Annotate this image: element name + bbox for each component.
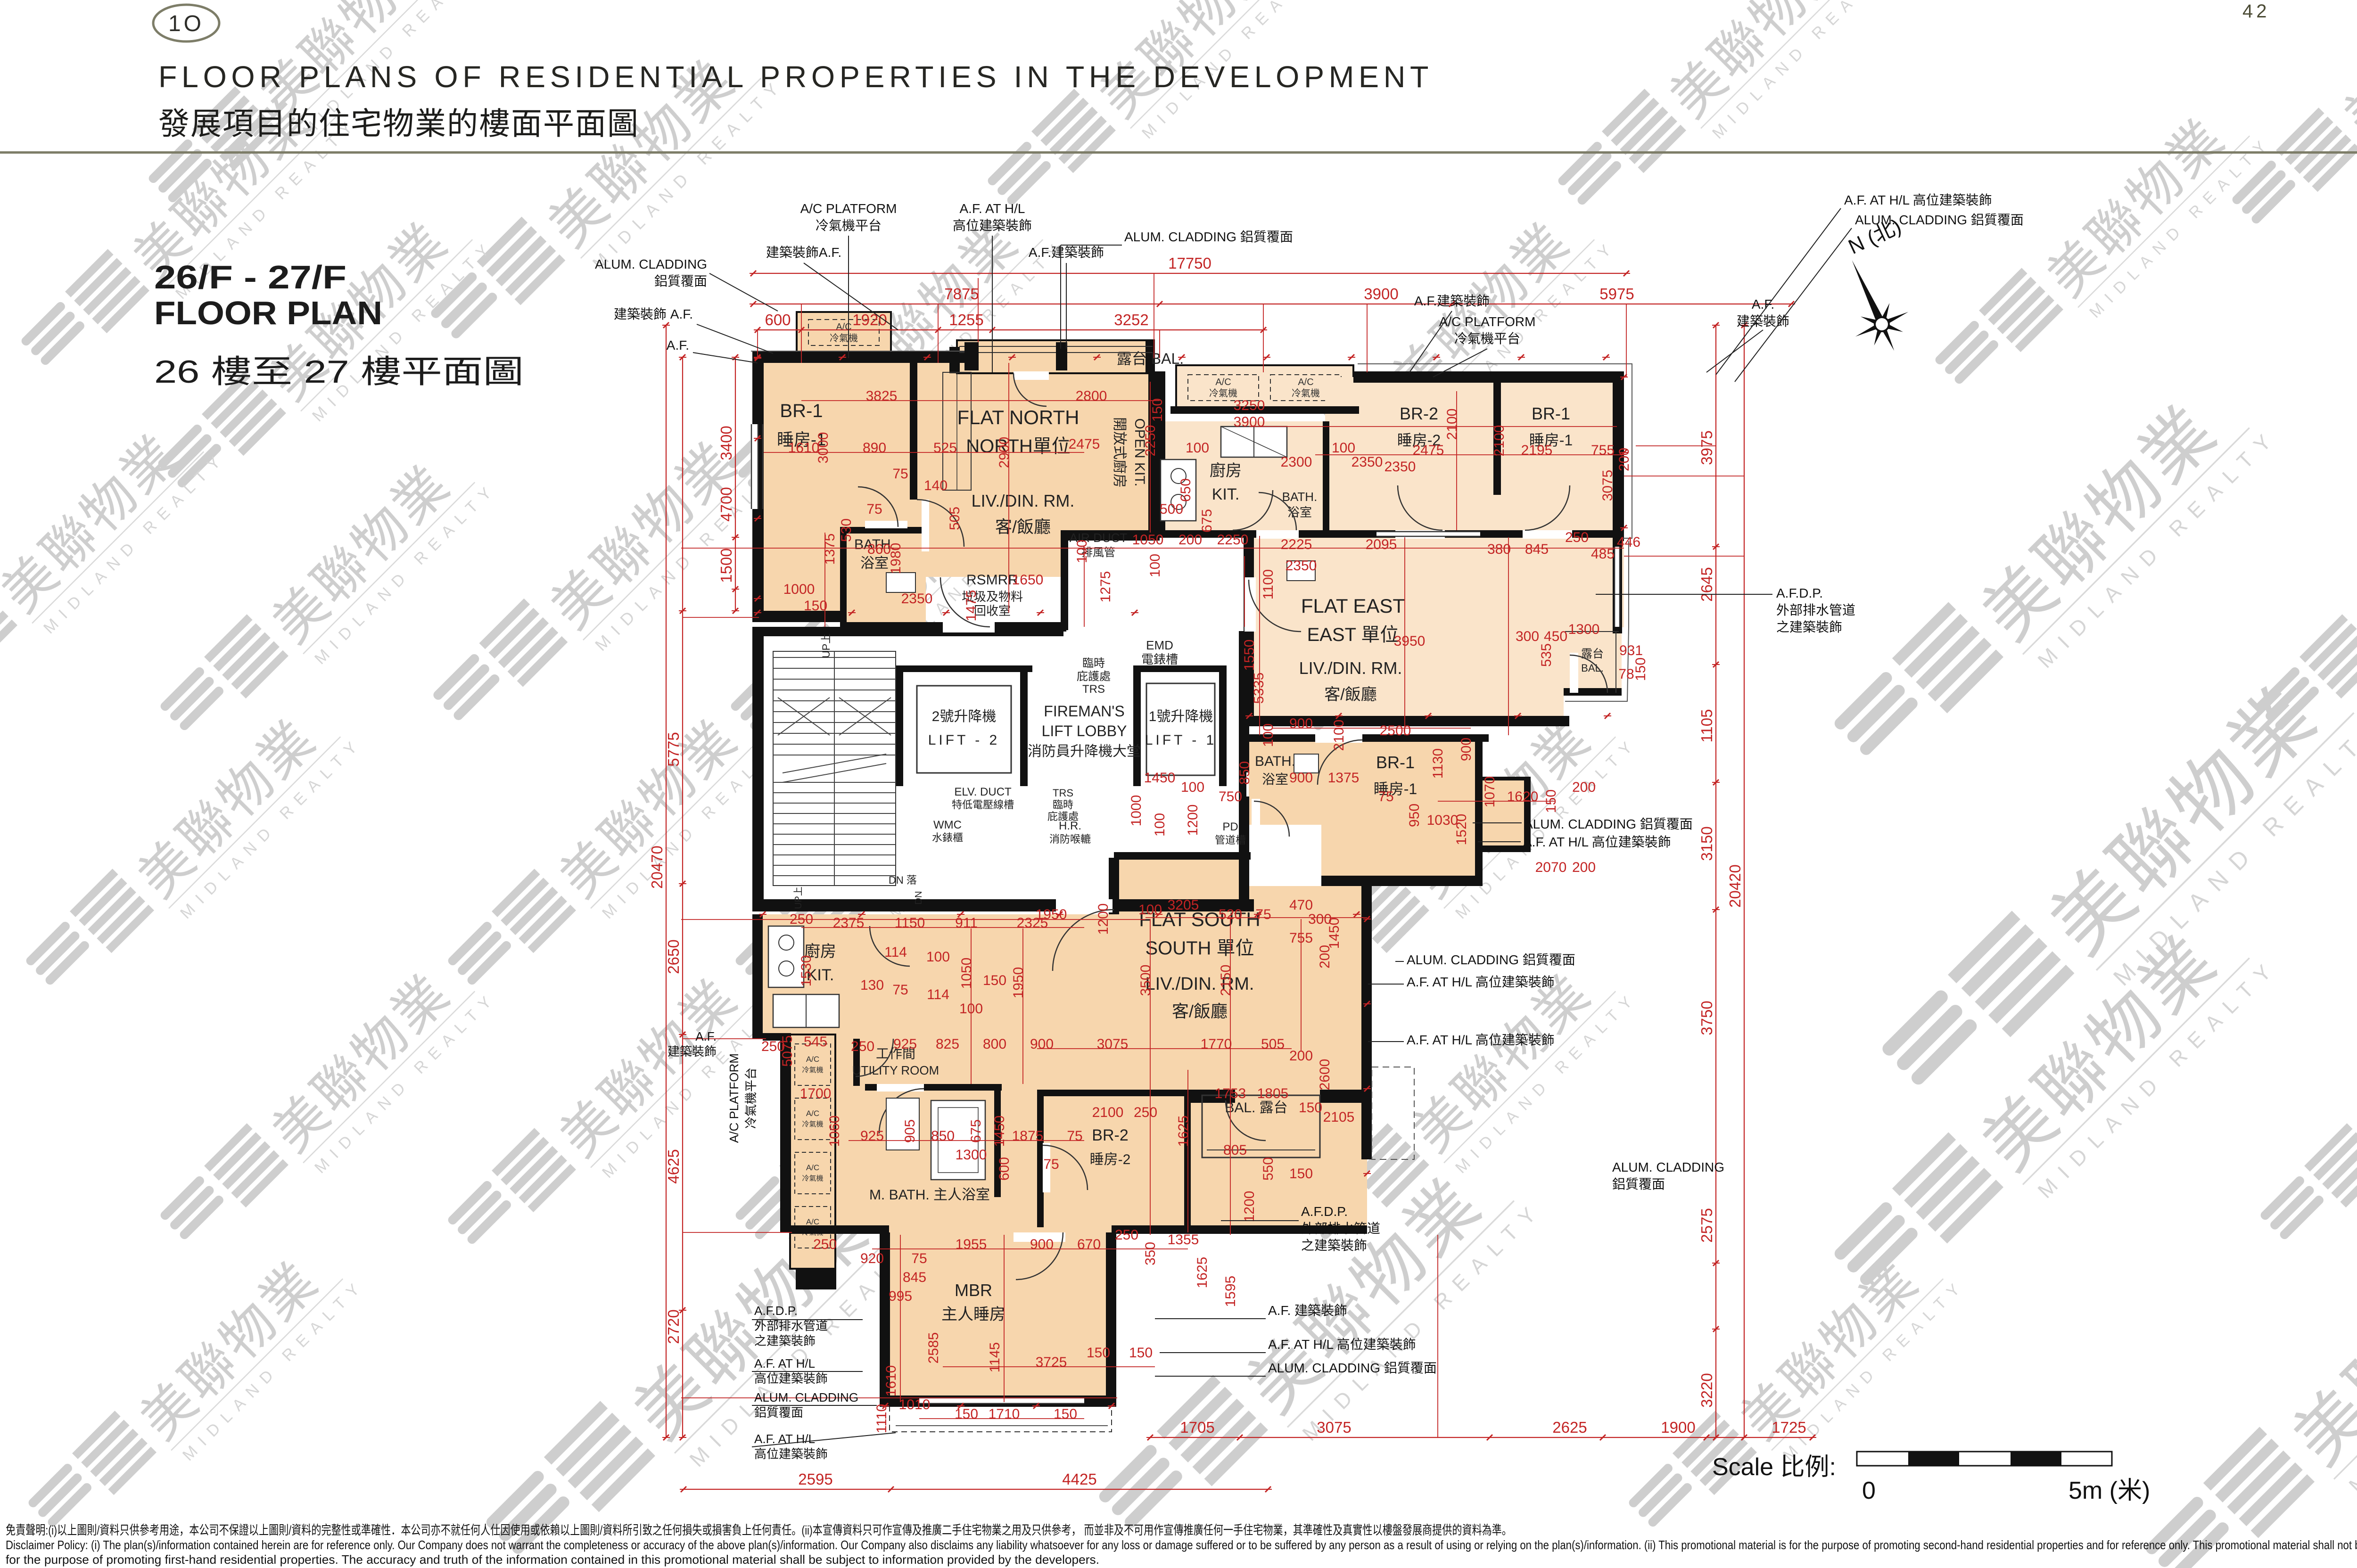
svg-text:1950: 1950 bbox=[1011, 967, 1026, 999]
svg-text:931: 931 bbox=[1619, 643, 1643, 658]
svg-text:535: 535 bbox=[1539, 643, 1554, 667]
svg-text:1920: 1920 bbox=[852, 311, 887, 328]
svg-text:A.F. AT H/L: A.F. AT H/L bbox=[959, 201, 1025, 216]
svg-text:ELV. DUCT: ELV. DUCT bbox=[954, 786, 1012, 798]
svg-text:530: 530 bbox=[839, 518, 854, 542]
svg-text:1300: 1300 bbox=[1568, 622, 1600, 637]
svg-text:DN 落: DN 落 bbox=[889, 874, 917, 886]
svg-text:UP上: UP上 bbox=[820, 633, 832, 658]
svg-text:A.F. AT H/L 高位建築裝飾: A.F. AT H/L 高位建築裝飾 bbox=[1268, 1337, 1416, 1352]
svg-text:2300: 2300 bbox=[1281, 454, 1312, 470]
svg-text:A/C: A/C bbox=[836, 322, 851, 332]
svg-text:200: 200 bbox=[1178, 532, 1202, 548]
svg-text:BR-2: BR-2 bbox=[1400, 404, 1438, 423]
svg-text:Scale 比例:: Scale 比例: bbox=[1712, 1453, 1836, 1481]
svg-text:600: 600 bbox=[765, 311, 791, 328]
svg-text:450: 450 bbox=[1544, 629, 1567, 644]
svg-text:1980: 1980 bbox=[888, 543, 904, 575]
svg-text:2095: 2095 bbox=[1366, 537, 1397, 552]
svg-text:EAST 單位: EAST 單位 bbox=[1307, 624, 1399, 645]
svg-text:1號升降機: 1號升降機 bbox=[1149, 709, 1213, 724]
svg-text:冷氣機: 冷氣機 bbox=[802, 1120, 823, 1128]
svg-text:2350: 2350 bbox=[901, 591, 933, 607]
svg-text:A.F. AT H/L 高位建築裝飾: A.F. AT H/L 高位建築裝飾 bbox=[1407, 975, 1555, 989]
svg-text:RSMRR: RSMRR bbox=[966, 572, 1018, 588]
svg-text:800: 800 bbox=[983, 1036, 1006, 1052]
svg-text:3900: 3900 bbox=[1364, 285, 1398, 303]
svg-text:M. BATH. 主人浴室: M. BATH. 主人浴室 bbox=[869, 1187, 990, 1203]
svg-text:BATH.: BATH. bbox=[1282, 490, 1318, 504]
svg-text:250: 250 bbox=[1134, 1105, 1157, 1120]
svg-text:2475: 2475 bbox=[1069, 436, 1100, 452]
svg-text:BR-1: BR-1 bbox=[780, 401, 823, 421]
svg-text:100: 100 bbox=[1152, 813, 1168, 837]
svg-text:42: 42 bbox=[2242, 1, 2270, 22]
svg-text:1450: 1450 bbox=[1144, 770, 1176, 786]
svg-text:1100: 1100 bbox=[1261, 569, 1276, 600]
svg-text:TRS: TRS bbox=[1082, 683, 1105, 696]
svg-text:4625: 4625 bbox=[665, 1149, 682, 1183]
svg-text:2585: 2585 bbox=[926, 1332, 941, 1364]
svg-text:78: 78 bbox=[1618, 666, 1634, 682]
svg-text:LIV./DIN. RM.: LIV./DIN. RM. bbox=[1299, 658, 1402, 678]
svg-text:2225: 2225 bbox=[1281, 537, 1312, 552]
svg-text:650: 650 bbox=[1178, 478, 1194, 502]
svg-text:100: 100 bbox=[1332, 440, 1355, 456]
svg-text:675: 675 bbox=[968, 1119, 984, 1143]
svg-text:525: 525 bbox=[933, 440, 957, 456]
svg-text:2070: 2070 bbox=[1535, 860, 1567, 875]
svg-text:冷氣機平台: 冷氣機平台 bbox=[816, 218, 882, 233]
svg-text:ALUM. CLADDING 鋁質覆面: ALUM. CLADDING 鋁質覆面 bbox=[1407, 952, 1575, 967]
svg-text:250: 250 bbox=[1115, 1227, 1138, 1243]
svg-text:1375: 1375 bbox=[822, 534, 838, 565]
svg-text:2475: 2475 bbox=[1413, 443, 1444, 458]
svg-text:100: 100 bbox=[1181, 780, 1204, 795]
svg-text:A.F. AT H/L: A.F. AT H/L bbox=[754, 1356, 815, 1371]
svg-text:850: 850 bbox=[931, 1128, 955, 1144]
svg-text:1200: 1200 bbox=[1185, 805, 1201, 836]
svg-text:消防員升降機大堂: 消防員升降機大堂 bbox=[1028, 744, 1141, 759]
svg-text:1500: 1500 bbox=[717, 548, 735, 583]
svg-text:3252: 3252 bbox=[1114, 311, 1148, 328]
svg-text:庇護處: 庇護處 bbox=[1077, 670, 1111, 683]
svg-text:3950: 3950 bbox=[1394, 633, 1426, 649]
svg-text:EMD: EMD bbox=[1146, 638, 1173, 652]
svg-text:TRS: TRS bbox=[1053, 787, 1073, 799]
svg-text:925: 925 bbox=[860, 1128, 884, 1144]
svg-text:1770: 1770 bbox=[1201, 1036, 1232, 1052]
svg-text:FLAT EAST: FLAT EAST bbox=[1301, 595, 1405, 617]
svg-text:505: 505 bbox=[947, 507, 963, 530]
svg-text:300: 300 bbox=[1516, 629, 1539, 644]
svg-text:A.F. AT H/L 高位建築裝飾: A.F. AT H/L 高位建築裝飾 bbox=[1844, 193, 1992, 207]
svg-text:200: 200 bbox=[1317, 945, 1333, 969]
svg-text:1610: 1610 bbox=[883, 1365, 899, 1397]
svg-text:浴室: 浴室 bbox=[1262, 772, 1288, 787]
svg-text:鋁質覆面: 鋁質覆面 bbox=[654, 274, 707, 288]
svg-text:1710: 1710 bbox=[989, 1406, 1020, 1422]
svg-text:高位建築裝飾: 高位建築裝飾 bbox=[754, 1371, 828, 1386]
svg-text:845: 845 bbox=[903, 1270, 926, 1285]
svg-text:825: 825 bbox=[936, 1036, 959, 1052]
svg-text:BR-1: BR-1 bbox=[1376, 753, 1415, 772]
svg-text:4700: 4700 bbox=[717, 487, 735, 521]
svg-text:2645: 2645 bbox=[1698, 567, 1715, 601]
svg-text:150: 150 bbox=[1633, 657, 1648, 681]
svg-text:建築裝飾: 建築裝飾 bbox=[1737, 314, 1789, 328]
svg-text:LIFT - 2: LIFT - 2 bbox=[928, 732, 1000, 748]
svg-text:75: 75 bbox=[1043, 1157, 1059, 1172]
svg-text:2375: 2375 bbox=[833, 915, 865, 931]
svg-text:250: 250 bbox=[851, 1039, 874, 1054]
svg-text:FLOOR PLANS OF RESIDENTIAL PRO: FLOOR PLANS OF RESIDENTIAL PROPERTIES IN… bbox=[158, 60, 1433, 94]
svg-text:900: 900 bbox=[1289, 770, 1313, 786]
svg-text:2350: 2350 bbox=[1286, 558, 1317, 574]
svg-text:外部排水管道: 外部排水管道 bbox=[754, 1319, 828, 1333]
svg-text:20420: 20420 bbox=[1726, 864, 1744, 908]
svg-text:A/C PLATFORM: A/C PLATFORM bbox=[727, 1053, 741, 1143]
svg-text:1805: 1805 bbox=[1257, 1086, 1289, 1101]
svg-text:庇護處: 庇護處 bbox=[1047, 811, 1079, 822]
svg-text:2600: 2600 bbox=[1317, 1059, 1333, 1091]
svg-text:5975: 5975 bbox=[1599, 285, 1634, 303]
svg-text:A/C: A/C bbox=[806, 1055, 819, 1064]
svg-text:380: 380 bbox=[1487, 542, 1511, 557]
svg-text:A.F.建築裝飾: A.F.建築裝飾 bbox=[1029, 245, 1104, 260]
svg-text:1030: 1030 bbox=[1427, 813, 1459, 828]
svg-text:75: 75 bbox=[892, 466, 908, 482]
svg-text:2105: 2105 bbox=[1323, 1109, 1355, 1125]
svg-text:26 樓至 27 樓平面圖: 26 樓至 27 樓平面圖 bbox=[154, 354, 524, 390]
svg-text:845: 845 bbox=[1525, 542, 1549, 557]
svg-text:鋁質覆面: 鋁質覆面 bbox=[754, 1405, 803, 1420]
svg-text:550: 550 bbox=[1261, 1157, 1276, 1181]
svg-text:FLAT NORTH: FLAT NORTH bbox=[957, 406, 1079, 428]
svg-text:1010: 1010 bbox=[899, 1397, 931, 1412]
svg-text:150: 150 bbox=[1054, 1406, 1077, 1422]
svg-text:A.F.D.P.: A.F.D.P. bbox=[1776, 586, 1823, 600]
svg-text:浴室: 浴室 bbox=[1287, 505, 1312, 519]
svg-text:890: 890 bbox=[863, 440, 886, 456]
svg-text:冷氣機平台: 冷氣機平台 bbox=[1454, 331, 1520, 346]
svg-text:3400: 3400 bbox=[717, 426, 735, 460]
svg-text:ALUM. CLADDING 鋁質覆面: ALUM. CLADDING 鋁質覆面 bbox=[1524, 817, 1693, 831]
svg-text:250: 250 bbox=[1565, 530, 1589, 545]
svg-text:客/飯廳: 客/飯廳 bbox=[1324, 686, 1376, 704]
svg-text:A.F.: A.F. bbox=[1752, 297, 1774, 312]
svg-text:冷氣機: 冷氣機 bbox=[1209, 388, 1237, 399]
svg-text:150: 150 bbox=[804, 598, 827, 614]
svg-text:BR-1: BR-1 bbox=[1532, 404, 1570, 423]
svg-text:電錶槽: 電錶槽 bbox=[1141, 652, 1178, 666]
svg-text:150: 150 bbox=[1299, 1100, 1322, 1116]
svg-text:Disclaimer Policy: (i) The pla: Disclaimer Policy: (i) The plan(s)/infor… bbox=[6, 1538, 2357, 1552]
svg-text:2800: 2800 bbox=[1076, 388, 1107, 404]
svg-text:DN: DN bbox=[914, 891, 924, 905]
svg-text:A/C: A/C bbox=[806, 1163, 819, 1172]
svg-text:2720: 2720 bbox=[665, 1309, 682, 1344]
svg-text:ALUM. CLADDING: ALUM. CLADDING bbox=[754, 1390, 858, 1404]
svg-text:冷氣機: 冷氣機 bbox=[802, 1174, 823, 1182]
svg-text:A/C: A/C bbox=[806, 1217, 819, 1226]
svg-text:2150: 2150 bbox=[1218, 965, 1234, 996]
svg-text:100: 100 bbox=[1074, 540, 1090, 563]
svg-text:1145: 1145 bbox=[987, 1342, 1003, 1373]
svg-text:150: 150 bbox=[983, 973, 1006, 988]
svg-text:140: 140 bbox=[924, 478, 948, 493]
svg-text:500: 500 bbox=[1160, 501, 1183, 517]
svg-text:20470: 20470 bbox=[648, 846, 666, 889]
svg-text:高位建築裝飾: 高位建築裝飾 bbox=[754, 1447, 828, 1461]
svg-text:485: 485 bbox=[1591, 546, 1615, 562]
svg-text:5775: 5775 bbox=[665, 732, 682, 766]
svg-text:主人睡房: 主人睡房 bbox=[941, 1305, 1005, 1323]
svg-text:消防喉轆: 消防喉轆 bbox=[1049, 833, 1091, 845]
svg-text:1200: 1200 bbox=[1242, 1191, 1257, 1223]
svg-text:3075: 3075 bbox=[1317, 1419, 1351, 1436]
svg-text:LIFT - 1: LIFT - 1 bbox=[1145, 732, 1217, 748]
svg-text:675: 675 bbox=[1199, 509, 1215, 533]
svg-text:900: 900 bbox=[1459, 738, 1474, 761]
svg-text:3500: 3500 bbox=[1138, 965, 1154, 996]
svg-text:26/F - 27/F: 26/F - 27/F bbox=[154, 259, 346, 296]
svg-text:250: 250 bbox=[761, 1039, 785, 1054]
svg-text:2650: 2650 bbox=[665, 939, 682, 974]
svg-text:臨時: 臨時 bbox=[1053, 799, 1073, 811]
svg-text:2100: 2100 bbox=[1444, 409, 1460, 440]
svg-text:冷氣機: 冷氣機 bbox=[802, 1066, 823, 1074]
svg-text:免責聲明:(i)以上圖則/資料只供參考用途，本公司不保證以上: 免責聲明:(i)以上圖則/資料只供參考用途，本公司不保證以上圖則/資料的完整性或… bbox=[6, 1523, 1512, 1537]
svg-text:150: 150 bbox=[1087, 1345, 1110, 1361]
svg-text:1900: 1900 bbox=[1661, 1419, 1695, 1436]
svg-text:BR-2: BR-2 bbox=[1092, 1126, 1128, 1144]
svg-text:0: 0 bbox=[1862, 1477, 1876, 1504]
svg-text:75: 75 bbox=[1378, 789, 1393, 805]
svg-text:1705: 1705 bbox=[1180, 1419, 1214, 1436]
svg-text:2100: 2100 bbox=[1331, 720, 1347, 751]
svg-text:A.F.D.P.: A.F.D.P. bbox=[1301, 1204, 1348, 1219]
svg-text:900: 900 bbox=[1030, 1237, 1054, 1252]
svg-text:for the purpose of promoting f: for the purpose of promoting first-hand … bbox=[6, 1552, 1099, 1567]
svg-text:3750: 3750 bbox=[1698, 1001, 1715, 1035]
svg-text:1150: 1150 bbox=[895, 915, 925, 931]
svg-text:911: 911 bbox=[955, 915, 978, 931]
svg-text:BAL.: BAL. bbox=[1581, 662, 1604, 674]
svg-text:860: 860 bbox=[867, 542, 891, 557]
svg-text:ALUM. CLADDING: ALUM. CLADDING bbox=[1612, 1160, 1724, 1174]
svg-text:2號升降機: 2號升降機 bbox=[932, 709, 997, 724]
svg-text:670: 670 bbox=[1077, 1237, 1101, 1252]
svg-text:LIV./DIN. RM.: LIV./DIN. RM. bbox=[1146, 974, 1254, 994]
svg-text:545: 545 bbox=[804, 1034, 827, 1050]
svg-text:1595: 1595 bbox=[1223, 1276, 1238, 1307]
svg-text:BATH.: BATH. bbox=[1255, 754, 1295, 769]
svg-text:3825: 3825 bbox=[866, 388, 898, 404]
svg-text:1105: 1105 bbox=[1698, 709, 1715, 743]
svg-text:2625: 2625 bbox=[1552, 1419, 1587, 1436]
svg-text:100: 100 bbox=[1147, 554, 1163, 577]
svg-text:1050: 1050 bbox=[1132, 532, 1164, 548]
svg-text:1450: 1450 bbox=[1327, 918, 1342, 949]
svg-text:114: 114 bbox=[884, 944, 907, 960]
svg-text:臨時: 臨時 bbox=[1082, 657, 1105, 670]
svg-text:廚房: 廚房 bbox=[1210, 462, 1242, 480]
svg-text:3075: 3075 bbox=[1097, 1036, 1129, 1052]
svg-text:WMC: WMC bbox=[933, 819, 962, 831]
svg-text:之建築裝飾: 之建築裝飾 bbox=[754, 1334, 816, 1348]
svg-text:755: 755 bbox=[1591, 443, 1615, 458]
svg-text:1000: 1000 bbox=[1129, 795, 1144, 827]
svg-text:250: 250 bbox=[813, 1237, 837, 1252]
svg-text:FLOOR PLAN: FLOOR PLAN bbox=[154, 295, 382, 331]
svg-text:2250: 2250 bbox=[1217, 532, 1249, 548]
svg-text:75: 75 bbox=[1067, 1128, 1082, 1144]
svg-text:470: 470 bbox=[1289, 897, 1313, 913]
svg-text:冷氣機: 冷氣機 bbox=[830, 333, 858, 344]
svg-text:A.F. AT H/L 高位建築裝飾: A.F. AT H/L 高位建築裝飾 bbox=[1407, 1033, 1555, 1047]
svg-text:之建築裝飾: 之建築裝飾 bbox=[1776, 620, 1842, 634]
svg-text:1130: 1130 bbox=[1430, 748, 1446, 779]
svg-text:75: 75 bbox=[892, 982, 908, 998]
svg-text:1530: 1530 bbox=[799, 955, 814, 987]
svg-text:A/C: A/C bbox=[1298, 377, 1313, 387]
svg-text:200: 200 bbox=[1572, 780, 1596, 795]
svg-text:5m (米): 5m (米) bbox=[2069, 1477, 2150, 1504]
svg-text:900: 900 bbox=[1289, 716, 1313, 731]
svg-text:ALUM. CLADDING 鋁質覆面: ALUM. CLADDING 鋁質覆面 bbox=[1124, 230, 1293, 244]
svg-text:回收室: 回收室 bbox=[974, 604, 1011, 618]
svg-text:1450: 1450 bbox=[992, 1116, 1007, 1147]
svg-text:4425: 4425 bbox=[1062, 1470, 1096, 1488]
svg-text:100: 100 bbox=[1261, 723, 1276, 747]
svg-text:75: 75 bbox=[866, 501, 882, 517]
svg-text:446: 446 bbox=[1617, 534, 1640, 550]
svg-text:A.F.建築裝飾: A.F.建築裝飾 bbox=[1414, 294, 1490, 308]
svg-text:1625: 1625 bbox=[1195, 1257, 1210, 1289]
svg-text:3150: 3150 bbox=[1698, 826, 1715, 861]
svg-text:900: 900 bbox=[1030, 1036, 1054, 1052]
svg-text:高位建築裝飾: 高位建築裝飾 bbox=[953, 218, 1032, 233]
svg-text:950: 950 bbox=[1407, 804, 1422, 827]
svg-text:A.F. AT H/L 高位建築裝飾: A.F. AT H/L 高位建築裝飾 bbox=[1523, 835, 1671, 849]
svg-text:A.F.: A.F. bbox=[695, 1029, 717, 1043]
svg-text:1625: 1625 bbox=[1176, 1116, 1191, 1147]
svg-text:2100: 2100 bbox=[1492, 425, 1507, 457]
svg-text:100: 100 bbox=[1186, 440, 1209, 456]
svg-text:發展項目的住宅物業的樓面平面圖: 發展項目的住宅物業的樓面平面圖 bbox=[158, 106, 639, 141]
svg-text:A/C: A/C bbox=[806, 1109, 819, 1118]
svg-text:3250: 3250 bbox=[1234, 398, 1265, 413]
svg-text:FIREMAN'S: FIREMAN'S bbox=[1044, 703, 1124, 720]
svg-text:1725: 1725 bbox=[1772, 1419, 1806, 1436]
svg-text:1375: 1375 bbox=[1328, 770, 1360, 786]
svg-text:114: 114 bbox=[927, 987, 949, 1002]
svg-text:3725: 3725 bbox=[1036, 1355, 1067, 1370]
svg-text:925: 925 bbox=[893, 1036, 917, 1052]
svg-text:1060: 1060 bbox=[827, 1116, 842, 1147]
svg-text:睡房-2: 睡房-2 bbox=[1090, 1152, 1131, 1167]
svg-text:2500: 2500 bbox=[1380, 723, 1411, 739]
svg-text:1355: 1355 bbox=[1168, 1232, 1199, 1248]
svg-text:3075: 3075 bbox=[1600, 470, 1615, 501]
svg-text:3900: 3900 bbox=[1234, 414, 1265, 430]
svg-text:A.F. 建築裝飾: A.F. 建築裝飾 bbox=[1268, 1303, 1347, 1318]
svg-text:1110: 1110 bbox=[874, 1404, 890, 1433]
svg-text:2195: 2195 bbox=[1521, 443, 1553, 458]
svg-text:17750: 17750 bbox=[1168, 254, 1211, 272]
svg-text:1200: 1200 bbox=[1096, 903, 1111, 935]
svg-text:2100: 2100 bbox=[1092, 1105, 1124, 1120]
svg-text:1000: 1000 bbox=[783, 582, 815, 597]
svg-text:130: 130 bbox=[860, 977, 884, 993]
svg-text:100: 100 bbox=[926, 949, 950, 965]
svg-text:之建築裝飾: 之建築裝飾 bbox=[1301, 1238, 1367, 1253]
svg-text:3220: 3220 bbox=[1698, 1373, 1715, 1407]
svg-text:建築裝飾 A.F.: 建築裝飾 A.F. bbox=[614, 307, 693, 321]
svg-text:2575: 2575 bbox=[1698, 1208, 1715, 1242]
svg-text:920: 920 bbox=[860, 1251, 884, 1266]
svg-text:2350: 2350 bbox=[1352, 454, 1383, 470]
svg-text:3205: 3205 bbox=[1168, 897, 1199, 913]
svg-text:鋁質覆面: 鋁質覆面 bbox=[1612, 1177, 1665, 1191]
svg-text:A/C PLATFORM: A/C PLATFORM bbox=[1439, 314, 1536, 329]
svg-text:2595: 2595 bbox=[798, 1470, 832, 1488]
svg-text:1475: 1475 bbox=[964, 590, 979, 622]
svg-text:浴室: 浴室 bbox=[860, 556, 889, 571]
svg-text:KIT.: KIT. bbox=[1212, 485, 1240, 503]
svg-text:A/C: A/C bbox=[1215, 377, 1231, 387]
svg-text:ALUM. CLADDING 鋁質覆面: ALUM. CLADDING 鋁質覆面 bbox=[1268, 1361, 1437, 1375]
svg-text:1050: 1050 bbox=[959, 958, 974, 989]
svg-text:建築裝飾A.F.: 建築裝飾A.F. bbox=[766, 245, 841, 260]
svg-text:LIFT LOBBY: LIFT LOBBY bbox=[1042, 722, 1127, 739]
svg-text:冷氣機平台: 冷氣機平台 bbox=[744, 1067, 758, 1129]
svg-text:A.F.D.P.: A.F.D.P. bbox=[754, 1304, 798, 1318]
svg-text:1955: 1955 bbox=[956, 1237, 987, 1252]
svg-text:外部排水管道: 外部排水管道 bbox=[1301, 1221, 1380, 1236]
svg-text:1700: 1700 bbox=[800, 1086, 832, 1101]
svg-text:PD: PD bbox=[1222, 821, 1238, 833]
svg-text:特低電壓線槽: 特低電壓線槽 bbox=[952, 799, 1014, 811]
svg-text:BAL. 露台: BAL. 露台 bbox=[1225, 1100, 1287, 1116]
svg-text:A/C PLATFORM: A/C PLATFORM bbox=[800, 201, 897, 216]
svg-text:SOUTH 單位: SOUTH 單位 bbox=[1145, 938, 1254, 959]
svg-text:UP上: UP上 bbox=[793, 887, 804, 909]
svg-text:505: 505 bbox=[1261, 1036, 1285, 1052]
svg-text:600: 600 bbox=[997, 1157, 1012, 1181]
svg-text:5335: 5335 bbox=[1251, 673, 1267, 704]
svg-text:MBR: MBR bbox=[955, 1281, 992, 1300]
svg-text:1300: 1300 bbox=[956, 1147, 987, 1163]
svg-text:建築裝飾: 建築裝飾 bbox=[668, 1044, 717, 1059]
svg-text:NORTH單位: NORTH單位 bbox=[966, 436, 1070, 457]
svg-text:2350: 2350 bbox=[1385, 459, 1416, 475]
svg-text:150: 150 bbox=[1129, 1345, 1153, 1361]
svg-text:外部排水管道: 外部排水管道 bbox=[1776, 603, 1855, 617]
svg-text:805: 805 bbox=[1223, 1142, 1247, 1158]
svg-text:850: 850 bbox=[1237, 761, 1253, 785]
svg-text:LIV./DIN. RM.: LIV./DIN. RM. bbox=[972, 491, 1075, 510]
svg-text:客/飯廳: 客/飯廳 bbox=[1172, 1002, 1228, 1021]
svg-text:200: 200 bbox=[1572, 860, 1596, 875]
svg-text:1070: 1070 bbox=[1482, 776, 1498, 808]
svg-text:150: 150 bbox=[1150, 398, 1165, 422]
svg-text:150: 150 bbox=[1289, 1166, 1313, 1182]
svg-text:開放式廚房: 開放式廚房 bbox=[1112, 417, 1127, 488]
svg-text:1610: 1610 bbox=[788, 440, 820, 456]
svg-text:客/飯廳: 客/飯廳 bbox=[995, 517, 1051, 536]
